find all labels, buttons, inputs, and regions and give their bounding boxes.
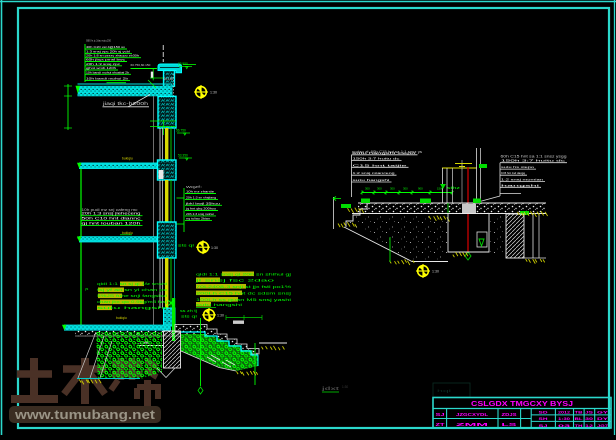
svg-text:300: 300 — [390, 187, 395, 191]
svg-text:bukiqiu: bukiqiu — [116, 316, 127, 320]
svg-text:70L2408-3 snji st jjx fstl po1: 70L2408-3 snji st jjx fstl po1% — [196, 284, 292, 289]
svg-text:sthz: sthz — [447, 186, 461, 190]
svg-text:1:30: 1:30 — [342, 385, 348, 389]
svg-text:1:30: 1:30 — [211, 246, 218, 250]
svg-text:ZMM: ZMM — [456, 422, 489, 427]
svg-text:1:30: 1:30 — [558, 416, 570, 421]
svg-text:5%JS fuhe snji fangshui: 5%JS fuhe snji fangshui — [97, 293, 167, 298]
svg-text:sutu hs xiepo: sutu hs xiepo — [501, 165, 534, 169]
svg-text:jdxt: jdxt — [320, 386, 340, 391]
svg-text:jq hnt qkq 200hou: jq hnt qkq 200hou — [185, 207, 217, 211]
svg-text:20h 1:3 snsj jieheceng: 20h 1:3 snsj jieheceng — [82, 212, 141, 216]
svg-text:ss zh tj: ss zh tj — [180, 309, 197, 313]
svg-text:JZGCXYDL: JZGCXYDL — [456, 412, 489, 417]
svg-text:hangshi: hangshi — [501, 183, 540, 187]
svg-text:sutu hangshi: sutu hangshi — [353, 178, 391, 182]
svg-text:sutu hangshi xiepo: sutu hangshi xiepo — [353, 151, 417, 155]
svg-text:JS: JS — [585, 410, 594, 415]
svg-text:bukiqiu: bukiqiu — [122, 157, 133, 161]
svg-text:10h bandi mohui 2b: 10h bandi mohui 2b — [86, 76, 129, 80]
svg-text:qidi 1:1 sn sj qi 1fz snshi: qidi 1:1 sn sj qi 1fz snshi — [97, 281, 167, 286]
svg-text:chan jbx qw 0.9kg/m3 fssj: chan jbx qw 0.9kg/m3 fssj — [97, 299, 167, 304]
svg-text:10h mz zhantie: 10h mz zhantie — [186, 190, 214, 194]
svg-text:sls qi: sls qi — [178, 244, 194, 248]
svg-text:ji snsj fsc 2dao: ji snsj fsc 2dao — [193, 278, 276, 283]
svg-text:50h C10 hnt diannc: 50h C10 hnt diannc — [82, 217, 142, 221]
svg-text:bukiqiu: bukiqiu — [122, 231, 133, 235]
svg-text:TH: TH — [575, 423, 583, 428]
svg-text:LS: LS — [502, 422, 517, 427]
svg-text:ZDJS: ZDJS — [502, 412, 517, 417]
svg-text:10h bandi mohui shuabai 2b: 10h bandi mohui shuabai 2b — [86, 70, 130, 74]
svg-text:SJ: SJ — [436, 412, 446, 417]
svg-text:TB: TB — [575, 410, 583, 415]
svg-text:sutu hangshi: sutu hangshi — [97, 305, 167, 310]
svg-text:200Lh C15 hnt dc sdsm snsj: 200Lh C15 hnt dc sdsm snsj — [196, 291, 291, 296]
svg-text:sls qi: sls qi — [181, 315, 198, 319]
svg-text:150h 3:7 huitu dc: 150h 3:7 huitu dc — [501, 159, 566, 163]
svg-text:sutu hangshi: sutu hangshi — [196, 302, 242, 307]
svg-text:gj hnt louban 120h: gj hnt louban 120h — [82, 221, 142, 225]
svg-text:qidi 1:1 snsj qi 20h sn shihui: qidi 1:1 snsj qi 20h sn shihui gj — [196, 272, 291, 277]
svg-text:150h 3:7 huitu dc: 150h 3:7 huitu dc — [353, 157, 401, 161]
svg-text:60.150: 60.150 — [164, 77, 174, 81]
svg-text:nq tuliao 2bian: nq tuliao 2bian — [186, 217, 210, 221]
svg-text:fsj yf an sn yl chan pc: fsj yf an sn yl chan pc — [97, 287, 167, 292]
svg-text:ys: ys — [85, 287, 89, 291]
svg-text:900: 900 — [418, 187, 423, 191]
svg-text:ZT: ZT — [436, 422, 446, 427]
svg-text:hql: hql — [437, 388, 451, 393]
svg-text:SH: SH — [539, 416, 548, 421]
svg-text:jiaqi tkc-h200h: jiaqi tkc-h200h — [101, 101, 149, 106]
svg-text:SBS fs jc 2dao szjq 250: SBS fs jc 2dao szjq 250 — [86, 39, 111, 43]
svg-text:53.350: 53.350 — [178, 154, 188, 158]
svg-text:1:30: 1:30 — [432, 270, 439, 274]
svg-text:60.750,60.150: 60.750,60.150 — [131, 63, 151, 67]
svg-text:www.tumubang.net: www.tumubang.net — [14, 408, 156, 422]
svg-text:300: 300 — [403, 187, 408, 191]
svg-text:20h 1:3 sn shajiang: 20h 1:3 sn shajiang — [186, 195, 216, 199]
svg-text:C15 hnt zsd dangq: C15 hnt zsd dangq — [501, 171, 525, 175]
svg-text:1:30: 1:30 — [210, 91, 217, 95]
svg-text:30: 30 — [585, 416, 593, 421]
svg-text:1:30: 1:30 — [217, 314, 224, 318]
svg-text:2012: 2012 — [558, 410, 571, 415]
svg-text:300: 300 — [365, 187, 370, 191]
svg-text:1:2 snsj mianceng: 1:2 snsj mianceng — [353, 171, 395, 175]
svg-text:DY: DY — [597, 416, 609, 421]
svg-text:40h C20 xsl 4@150 sx: 40h C20 xsl 4@150 sx — [86, 45, 126, 49]
svg-text:20h 1:3 snsj mohui: 20h 1:3 snsj mohui — [186, 212, 214, 216]
svg-text:23.950: 23.950 — [178, 62, 188, 66]
svg-text:300: 300 — [377, 187, 382, 191]
svg-text:BL: BL — [575, 416, 584, 421]
svg-text:SD: SD — [539, 410, 548, 415]
svg-text:GY: GY — [597, 410, 609, 415]
svg-text:jbkl bwjl 35hou: jbkl bwjl 35hou — [184, 201, 220, 205]
svg-text:CSLGDX TMGCXY BYSJ: CSLGDX TMGCXY BYSJ — [471, 399, 573, 408]
svg-text:SJ: SJ — [539, 423, 548, 428]
svg-text:C15 hnt taijie: C15 hnt taijie — [353, 163, 408, 167]
svg-text:1:2 snsj momian: 1:2 snsj momian — [501, 177, 544, 181]
svg-text:JG7: JG7 — [597, 423, 608, 428]
svg-text:56.750: 56.750 — [176, 129, 186, 133]
